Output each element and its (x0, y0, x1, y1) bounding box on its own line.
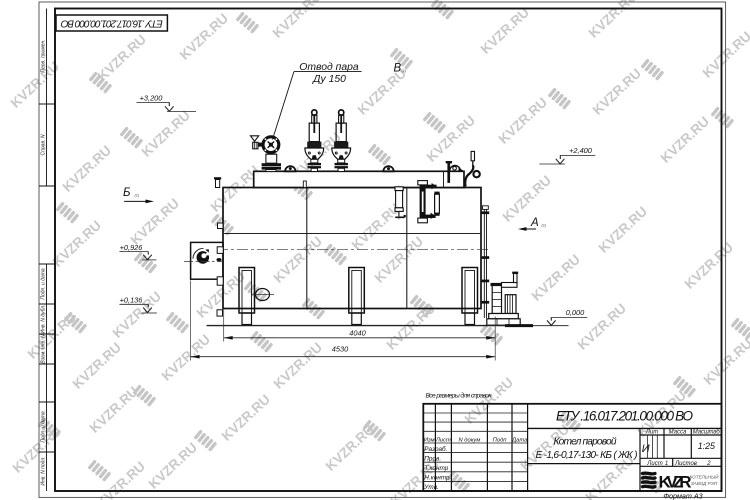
svg-text:Котел паровой: Котел паровой (554, 436, 617, 447)
svg-text:И: И (642, 443, 650, 455)
svg-text:1: 1 (665, 461, 668, 467)
svg-text:4040: 4040 (349, 329, 366, 338)
svg-text:Утв.: Утв. (423, 484, 439, 491)
svg-text:+0,136: +0,136 (120, 296, 144, 305)
svg-text:+3,200: +3,200 (140, 94, 164, 103)
svg-text:Лист: Лист (646, 461, 662, 467)
svg-text:Перв. примен.: Перв. примен. (41, 39, 47, 72)
svg-text:0,000: 0,000 (566, 308, 585, 317)
svg-text:1:25: 1:25 (698, 441, 715, 451)
svg-text:+2,400: +2,400 (569, 146, 593, 155)
svg-text:ЕТУ .16.017.201.00.000 ВО: ЕТУ .16.017.201.00.000 ВО (60, 18, 162, 29)
svg-text:Б: Б (123, 187, 131, 199)
svg-text:Подп. и дата: Подп. и дата (41, 411, 47, 443)
svg-text:Формат А3: Формат А3 (663, 491, 702, 500)
svg-text:+0,926: +0,926 (120, 243, 144, 252)
svg-text:Подп: Подп (493, 437, 508, 443)
svg-text:(1): (1) (542, 224, 547, 228)
svg-text:Инв. N дубл.: Инв. N дубл. (41, 305, 47, 334)
svg-text:Н.контр: Н.контр (424, 475, 450, 482)
svg-text:Е -1,6-0,17-130- КБ ( ЖК ): Е -1,6-0,17-130- КБ ( ЖК ) (536, 450, 638, 461)
svg-text:Изм: Изм (424, 437, 435, 443)
svg-text:Лист: Лист (435, 437, 451, 443)
svg-text:Подп. и дата: Подп. и дата (41, 268, 47, 300)
svg-text:КОТЕЛЬНЫЙ: КОТЕЛЬНЫЙ (690, 472, 720, 479)
svg-text:ЕТУ .16.017.201.00.000 ВО: ЕТУ .16.017.201.00.000 ВО (556, 408, 693, 423)
svg-text:Разраб.: Разраб. (424, 445, 447, 453)
svg-text:(1): (1) (402, 69, 407, 73)
svg-text:А: А (530, 217, 539, 229)
svg-text:Масса: Масса (669, 430, 687, 436)
svg-text:ЗАВОД РЭП: ЗАВОД РЭП (691, 481, 718, 486)
svg-text:В: В (394, 63, 402, 75)
svg-text:2: 2 (706, 461, 711, 467)
svg-text:Масштаб: Масштаб (693, 430, 721, 436)
svg-text:N докум: N докум (458, 437, 480, 443)
svg-text:4530: 4530 (332, 344, 349, 353)
svg-text:Т.контр: Т.контр (424, 465, 448, 472)
svg-text:Справ. N: Справ. N (41, 134, 47, 155)
svg-text:Взам. инв. N: Взам. инв. N (41, 334, 47, 364)
svg-text:KVZR: KVZR (659, 472, 692, 491)
svg-text:Пров.: Пров. (424, 455, 441, 462)
svg-text:Дата: Дата (511, 437, 528, 443)
svg-text:Все размеры для справок: Все размеры для справок (426, 392, 493, 400)
svg-text:Лит: Лит (645, 430, 658, 436)
svg-text:(1): (1) (135, 194, 140, 198)
svg-text:Инв. N подл.: Инв. N подл. (41, 456, 47, 485)
svg-text:Ду 150: Ду 150 (312, 74, 346, 85)
svg-text:Листов: Листов (674, 461, 697, 467)
